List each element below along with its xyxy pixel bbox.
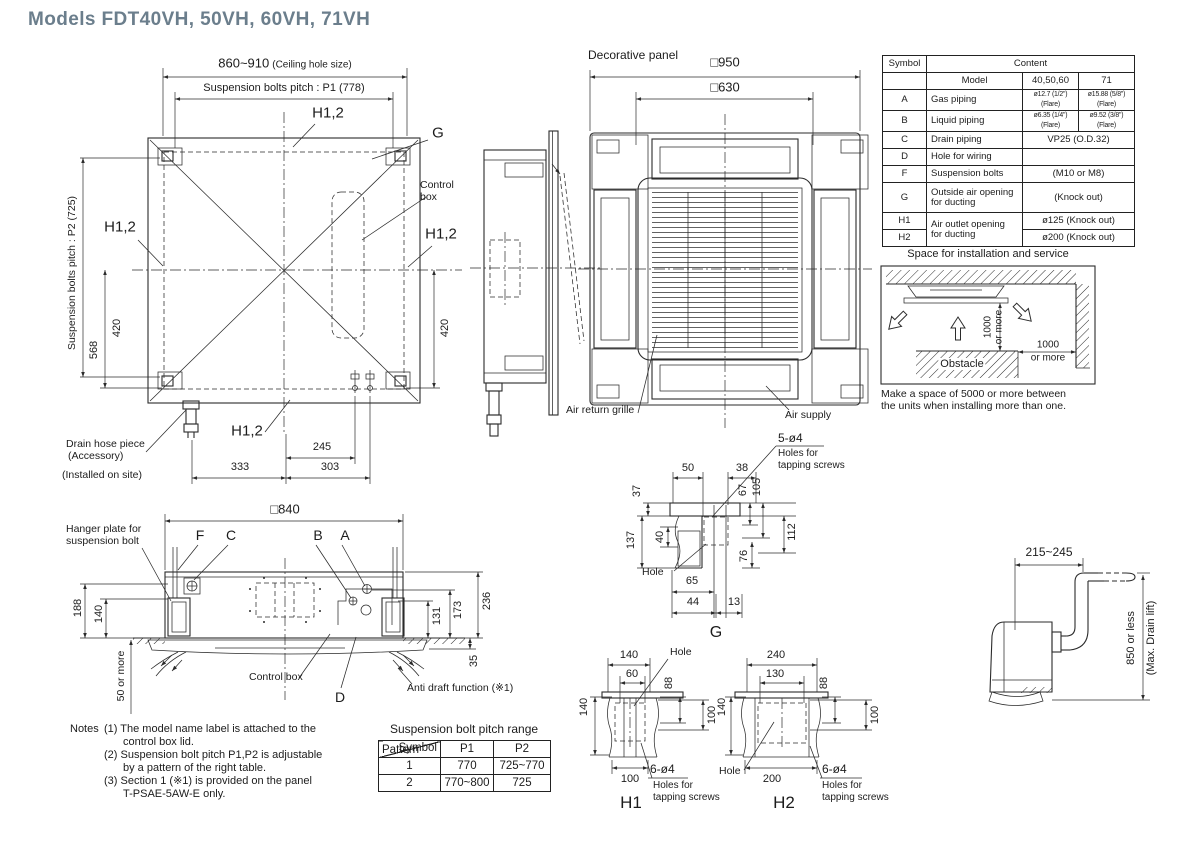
- plan-label-control-box: Control box: [420, 180, 454, 203]
- spec-header-405060: 40,50,60: [1023, 73, 1079, 90]
- drain-dim-max-lift: (Max. Drain lift): [1145, 601, 1157, 676]
- detail-g-dim-50: 50: [682, 462, 694, 474]
- elev-label-a: A: [340, 527, 349, 543]
- spec-sym-d: D: [883, 149, 927, 166]
- detail-g-dim-44: 44: [687, 596, 699, 608]
- spec-name-drain: Drain piping: [927, 132, 1023, 149]
- plan-dim-ceiling: 860~910(Ceiling hole size): [218, 56, 351, 71]
- detail-g-dim-112: 112: [786, 523, 798, 541]
- plan-dim-ceiling-value: 860~910: [218, 56, 269, 71]
- detail-h1-hole-label: Hole: [670, 647, 692, 659]
- spec-val-drain: VP25 (O.D.32): [1023, 132, 1135, 149]
- page-title: Models FDT40VH, 50VH, 60VH, 71VH: [28, 9, 370, 31]
- detail-h1-screws-count: 6-ø4: [650, 764, 675, 776]
- pitch-table: SymbolPattern P1 P2 1 770 725~770 2 770~…: [378, 740, 551, 792]
- plan-drain-label-3: (Installed on site): [62, 470, 142, 482]
- plan-dim-p1: Suspension bolts pitch : P1 (778): [203, 82, 364, 94]
- spec-val-h1: ø125 (Knock out): [1023, 213, 1135, 230]
- panel-dim-630: □630: [710, 80, 740, 95]
- plan-dim-420-left: 420: [111, 319, 123, 337]
- side-view-lines: [470, 131, 600, 436]
- elev-label-d: D: [335, 689, 345, 705]
- detail-h2-lines: [725, 658, 872, 778]
- spec-val-bolts: (M10 or M8): [1023, 166, 1135, 183]
- detail-g-caption: G: [710, 624, 722, 642]
- drain-dim-215-245: 215~245: [1025, 545, 1072, 559]
- detail-h1-caption: H1: [620, 793, 642, 813]
- spec-val-outside-air: (Knock out): [1023, 183, 1135, 213]
- spec-name-liquid: Liquid piping: [927, 111, 1023, 132]
- elev-dim-840: □840: [270, 502, 300, 517]
- elev-dim-173: 173: [452, 601, 464, 619]
- pitch-diag-cell: SymbolPattern: [379, 741, 441, 758]
- detail-g-dim-65: 65: [686, 575, 698, 587]
- elev-label-f: F: [196, 527, 205, 543]
- space-dim-1000-v: 1000: [983, 316, 994, 338]
- elev-dim-35: 35: [468, 655, 480, 667]
- detail-h1-lines: [590, 658, 709, 778]
- detail-h1-dim-100-bottom: 100: [621, 773, 639, 785]
- detail-g-screws-note: Holes for tapping screws: [778, 448, 845, 471]
- spec-val-gas-1: ø12.7 (1/2") (Flare): [1023, 90, 1079, 111]
- plan-label-h12-bottom: H1,2: [231, 423, 263, 440]
- spec-sym-c: C: [883, 132, 927, 149]
- detail-g-dim-105: 105: [751, 478, 763, 496]
- pitch-r1-p1: 770: [441, 758, 494, 775]
- detail-h2-dim-130: 130: [766, 668, 784, 680]
- elev-anti-draft-label: Anti draft function (※1): [407, 683, 513, 695]
- panel-title: Decorative panel: [588, 50, 678, 62]
- pitch-r1-p2: 725~770: [494, 758, 551, 775]
- detail-h2-hole-label: Hole: [719, 766, 741, 778]
- spec-name-wiring: Hole for wiring: [927, 149, 1023, 166]
- spec-header-content: Content: [927, 56, 1135, 73]
- spec-val-wiring: [1023, 149, 1135, 166]
- detail-h2-dim-100-right: 100: [869, 706, 881, 724]
- plan-drain-label-2: (Accessory): [68, 451, 123, 463]
- plan-label-h12-right: H1,2: [425, 226, 457, 243]
- note-item-2: (2) Suspension bolt pitch P1,P2 is adjus…: [104, 749, 400, 775]
- elev-control-box-label: Control box: [249, 672, 303, 684]
- detail-h1-dim-140-top: 140: [620, 649, 638, 661]
- drain-dim-850: 850 or less: [1125, 611, 1137, 665]
- plan-drain-label-1: Drain hose piece: [66, 439, 145, 451]
- space-dim-ormore-h: or more: [1031, 353, 1065, 364]
- notes-block: Notes (1) The model name label is attach…: [70, 723, 400, 801]
- pitch-r2-p2: 725: [494, 775, 551, 792]
- symbol-content-table: Symbol Content Model 40,50,60 71 A Gas p…: [882, 55, 1135, 247]
- plan-dim-ceiling-note: (Ceiling hole size): [272, 60, 351, 71]
- space-dim-1000-h: 1000: [1037, 340, 1059, 351]
- spec-cell-empty: [883, 73, 927, 90]
- plan-label-h12-top: H1,2: [312, 105, 344, 122]
- detail-h1-screws-note: Holes for tapping screws: [653, 780, 720, 803]
- spec-val-h2: ø200 (Knock out): [1023, 230, 1135, 247]
- spec-header-symbol: Symbol: [883, 56, 927, 73]
- note-item-3: (3) Section 1 (※1) is provided on the pa…: [104, 775, 400, 801]
- spec-name-outside-air: Outside air opening for ducting: [927, 183, 1023, 213]
- spec-name-air-outlet: Air outlet opening for ducting: [927, 213, 1023, 247]
- elev-dim-131: 131: [431, 607, 443, 625]
- spec-header-model: Model: [927, 73, 1023, 90]
- plan-label-g: G: [432, 125, 444, 142]
- panel-dim-950: □950: [710, 55, 740, 70]
- space-dim-ormore-v: or more: [994, 310, 1005, 344]
- plan-dim-p2: Suspension bolts pitch : P2 (725): [66, 196, 78, 350]
- plan-dim-568: 568: [88, 341, 100, 359]
- detail-h2-screws-count: 6-ø4: [822, 764, 847, 776]
- detail-h1-dim-140-left: 140: [578, 698, 590, 716]
- spec-val-gas-2: ø15.88 (5/8") (Flare): [1079, 90, 1135, 111]
- space-title: Space for installation and service: [907, 248, 1068, 260]
- note-item-1: (1) The model name label is attached to …: [104, 723, 400, 749]
- detail-g-dim-40: 40: [654, 531, 666, 543]
- elev-dim-236: 236: [481, 592, 493, 610]
- pitch-r2-pattern: 2: [379, 775, 441, 792]
- decorative-panel-lines: [578, 70, 872, 428]
- detail-h2-caption: H2: [773, 793, 795, 813]
- detail-h1-dim-60: 60: [626, 668, 638, 680]
- elev-label-c: C: [226, 527, 236, 543]
- spec-header-71: 71: [1079, 73, 1135, 90]
- plan-label-h12-left: H1,2: [104, 219, 136, 236]
- spec-sym-g: G: [883, 183, 927, 213]
- detail-g-dim-13: 13: [728, 596, 740, 608]
- plan-dim-245: 245: [313, 441, 331, 453]
- elev-dim-50-or-more: 50 or more: [115, 651, 127, 702]
- spec-val-liquid-1: ø6.35 (1/4") (Flare): [1023, 111, 1079, 132]
- notes-label: Notes: [70, 723, 99, 736]
- spec-name-bolts: Suspension bolts: [927, 166, 1023, 183]
- detail-h2-dim-88: 88: [818, 677, 830, 689]
- spec-sym-a: A: [883, 90, 927, 111]
- detail-g-dim-37: 37: [631, 485, 643, 497]
- elev-dim-140: 140: [93, 605, 105, 623]
- spec-sym-h1: H1: [883, 213, 927, 230]
- pitch-diag-pattern: Pattern: [382, 744, 419, 756]
- spec-val-liquid-2: ø9.52 (3/8") (Flare): [1079, 111, 1135, 132]
- elev-hanger-label: Hanger plate for suspension bolt: [66, 524, 141, 547]
- detail-g-dim-38: 38: [736, 462, 748, 474]
- detail-h2-screws-note: Holes for tapping screws: [822, 780, 889, 803]
- space-note: Make a space of 5000 or more between the…: [881, 389, 1066, 412]
- drawing-sheet: Models FDT40VH, 50VH, 60VH, 71VH 860~910…: [0, 0, 1200, 849]
- spec-name-gas: Gas piping: [927, 90, 1023, 111]
- detail-g-dim-137: 137: [625, 531, 637, 549]
- spec-sym-b: B: [883, 111, 927, 132]
- detail-g-dim-67: 67: [737, 484, 749, 496]
- plan-view-lines: [80, 68, 462, 484]
- spec-sym-f: F: [883, 166, 927, 183]
- pitch-r1-pattern: 1: [379, 758, 441, 775]
- plan-dim-420-right: 420: [439, 319, 451, 337]
- detail-g-hole-label: Hole: [642, 567, 664, 579]
- detail-g-screws-count: 5-ø4: [778, 433, 803, 445]
- detail-h2-dim-240: 240: [767, 649, 785, 661]
- elev-dim-188: 188: [72, 599, 84, 617]
- panel-air-supply-label: Air supply: [785, 410, 831, 422]
- pitch-table-title: Suspension bolt pitch range: [378, 722, 550, 736]
- spec-sym-h2: H2: [883, 230, 927, 247]
- plan-dim-303: 303: [321, 461, 339, 473]
- detail-h2-dim-140-left: 140: [716, 698, 728, 716]
- pitch-header-p2: P2: [494, 741, 551, 758]
- space-obstacle-label: Obstacle: [938, 358, 985, 370]
- panel-air-return-label: Air return grille: [566, 405, 634, 417]
- elev-label-b: B: [313, 527, 322, 543]
- pitch-r2-p1: 770~800: [441, 775, 494, 792]
- plan-dim-333: 333: [231, 461, 249, 473]
- detail-h2-dim-200: 200: [763, 773, 781, 785]
- detail-g-dim-76: 76: [738, 550, 750, 562]
- pitch-header-p1: P1: [441, 741, 494, 758]
- detail-h1-dim-88: 88: [663, 677, 675, 689]
